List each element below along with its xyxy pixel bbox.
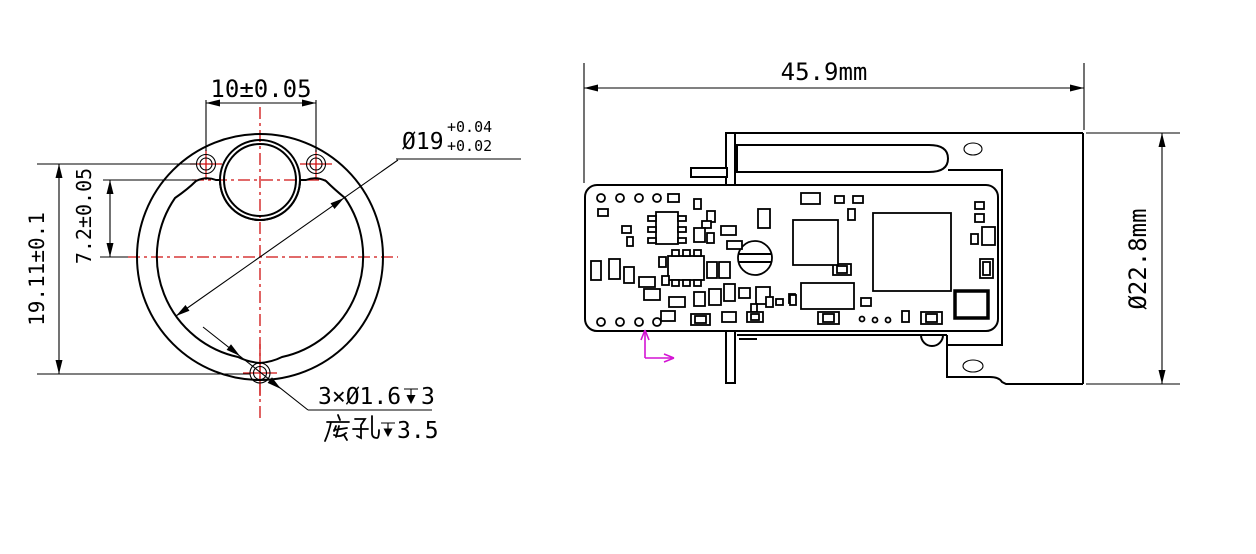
mount-hole-top [964, 143, 982, 155]
bore-diameter-text: Ø19 [402, 129, 444, 155]
front-view: 10±0.05 19.11±0.1 7.2±0.05 Ø19 +0.04 +0.… [25, 75, 521, 444]
bore-tol-upper-text: +0.04 [447, 118, 492, 136]
dim-hole-spacing-text: 10±0.05 [210, 75, 311, 103]
hole-callout-prefix-text: 3×Ø1.6 [318, 384, 401, 410]
housing-bottom-edge [947, 335, 1083, 384]
hole-callout-depth-text: 3 [421, 384, 435, 410]
dim-lens-offset-text: 7.2±0.05 [72, 168, 96, 264]
hanzi-di-glyph [325, 415, 349, 441]
hole-bottom-crosshair [243, 344, 277, 396]
dim-width-text: 45.9mm [781, 58, 868, 86]
connector-block [955, 291, 988, 318]
mount-hole-bottom [963, 360, 983, 372]
ic-soic8 [648, 212, 686, 244]
housing-left-tab [691, 168, 727, 177]
dim-lens-offset: 7.2±0.05 [72, 168, 196, 264]
drawing-svg: 10±0.05 19.11±0.1 7.2±0.05 Ø19 +0.04 +0.… [0, 0, 1256, 554]
drawing-canvas: 10±0.05 19.11±0.1 7.2±0.05 Ø19 +0.04 +0.… [0, 0, 1256, 554]
hanzi-kong-glyph [353, 416, 379, 438]
housing-lower-bump [921, 335, 943, 346]
base-hole-depth-text: 3.5 [397, 418, 439, 444]
dim-total-height-text: 19.11±0.1 [25, 212, 49, 326]
depth-symbol-2 [381, 423, 395, 437]
side-view: 45.9mm Ø22.8mm [584, 58, 1180, 384]
hole-callout: 3×Ø1.6 3 3.5 [203, 327, 439, 444]
dim-height: Ø22.8mm [1086, 133, 1180, 384]
depth-symbol [404, 389, 418, 404]
adjustment-screw [738, 241, 772, 275]
lens-barrel [737, 145, 948, 172]
medium-ic [793, 220, 838, 265]
datum-axis-lines [645, 331, 673, 358]
bore-tol-lower-text: +0.02 [447, 137, 492, 155]
dim-height-text: Ø22.8mm [1124, 208, 1152, 309]
datum-axes [641, 330, 674, 362]
bore-leader: Ø19 +0.04 +0.02 [176, 118, 521, 316]
large-ic [873, 213, 951, 291]
ic-sot23 [668, 250, 704, 286]
